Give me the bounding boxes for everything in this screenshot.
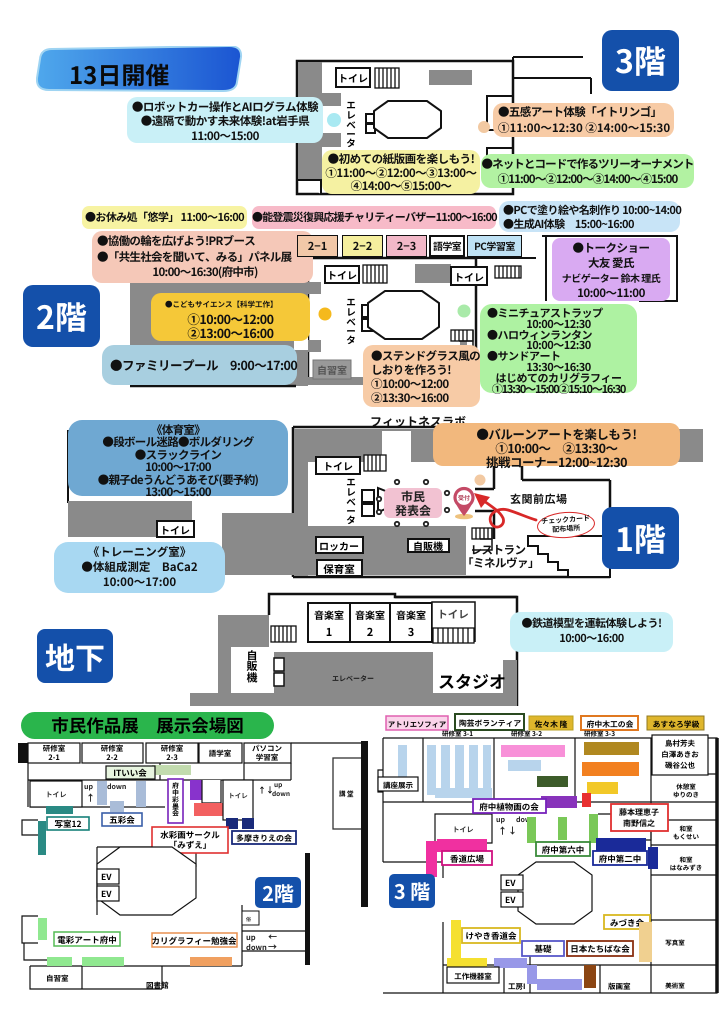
svg-text:トイレ: トイレ xyxy=(437,607,469,622)
svg-text:トイレ: トイレ xyxy=(46,790,67,800)
svg-text:down: down xyxy=(246,942,267,953)
svg-text:2-3: 2-3 xyxy=(166,752,178,763)
svg-text:香道広場: 香道広場 xyxy=(450,853,485,865)
svg-text:自習室: 自習室 xyxy=(317,362,347,377)
svg-text:トイレ: トイレ xyxy=(327,267,357,282)
svg-text:トイレ: トイレ xyxy=(454,269,484,284)
svg-text:版画室: 版画室 xyxy=(608,981,631,992)
svg-text:五彩会: 五彩会 xyxy=(109,814,135,826)
svg-text:音楽室: 音楽室 xyxy=(355,607,385,622)
svg-text:2-2: 2-2 xyxy=(106,752,118,763)
svg-text:講 堂: 講 堂 xyxy=(339,788,354,798)
svg-text:EV: EV xyxy=(505,894,516,906)
svg-text:自習室: 自習室 xyxy=(46,973,69,984)
svg-text:EV: EV xyxy=(505,877,516,889)
svg-text:ロッカー: ロッカー xyxy=(319,538,359,553)
svg-text:白澤あきお: 白澤あきお xyxy=(661,749,699,760)
svg-text:down: down xyxy=(272,788,290,798)
svg-text:自販機: 自販機 xyxy=(413,538,443,553)
svg-text:1: 1 xyxy=(326,624,333,640)
svg-text:府中彩墨会: 府中彩墨会 xyxy=(171,782,181,816)
svg-text:↓: ↓ xyxy=(508,824,517,837)
svg-text:けやき香道会: けやき香道会 xyxy=(465,930,517,942)
svg-text:磯谷公也: 磯谷公也 xyxy=(665,760,695,771)
svg-text:ITいい会: ITいい会 xyxy=(113,767,147,779)
svg-text:島村芳夫: 島村芳夫 xyxy=(665,738,695,749)
svg-text:2-1: 2-1 xyxy=(48,752,60,763)
svg-text:研修室 3-2: 研修室 3-2 xyxy=(511,728,542,738)
svg-text:トイレ: トイレ xyxy=(228,790,248,800)
svg-text:→: → xyxy=(268,940,277,953)
svg-text:語学室: 語学室 xyxy=(209,748,232,759)
svg-text:スタジオ: スタジオ xyxy=(438,668,506,693)
svg-text:あすなろ学級: あすなろ学級 xyxy=(653,719,700,730)
svg-text:南野信之: 南野信之 xyxy=(623,818,655,829)
svg-text:藤本理恵子: 藤本理恵子 xyxy=(619,807,659,818)
svg-text:トイレ: トイレ xyxy=(323,458,353,473)
svg-text:学習室: 学習室 xyxy=(256,752,279,763)
svg-text:府中第二中: 府中第二中 xyxy=(599,853,642,865)
svg-text:基礎: 基礎 xyxy=(534,943,552,955)
svg-text:2: 2 xyxy=(367,624,374,640)
svg-text:自販機: 自販機 xyxy=(244,649,260,682)
svg-text:音楽室: 音楽室 xyxy=(396,607,426,622)
svg-text:↑: ↑ xyxy=(498,824,507,837)
svg-text:↑: ↑ xyxy=(258,785,266,796)
svg-text:美術室: 美術室 xyxy=(665,980,685,990)
svg-text:↑: ↑ xyxy=(86,791,95,804)
svg-text:トイレ: トイレ xyxy=(338,70,368,85)
svg-text:研修室 3-3: 研修室 3-3 xyxy=(584,728,615,738)
svg-text:もくせい: もくせい xyxy=(673,831,700,841)
svg-text:俗: 俗 xyxy=(246,916,251,923)
svg-text:アトリエソフィア: アトリエソフィア xyxy=(388,720,446,730)
svg-text:多摩きりえの会: 多摩きりえの会 xyxy=(236,833,292,844)
svg-text:保育室: 保育室 xyxy=(323,562,355,577)
svg-text:EV: EV xyxy=(101,871,112,883)
svg-text:日本たちばな会: 日本たちばな会 xyxy=(570,943,630,955)
svg-text:受付: 受付 xyxy=(458,493,470,502)
svg-text:3: 3 xyxy=(408,624,415,640)
svg-text:府中植物画の会: 府中植物画の会 xyxy=(479,801,539,813)
svg-text:電彩アート府中: 電彩アート府中 xyxy=(57,934,117,946)
svg-text:写室12: 写室12 xyxy=(54,818,81,830)
svg-text:トイレ: トイレ xyxy=(160,522,190,537)
svg-text:音楽室: 音楽室 xyxy=(314,607,344,622)
svg-text:工作機器室: 工作機器室 xyxy=(454,971,492,982)
svg-text:カリグラフィー勉強会: カリグラフィー勉強会 xyxy=(151,935,237,947)
svg-text:EV: EV xyxy=(101,888,112,900)
svg-text:down: down xyxy=(107,782,126,792)
svg-text:エレベータ: エレベータ xyxy=(344,297,358,345)
svg-text:写真室: 写真室 xyxy=(665,937,685,947)
svg-text:研修室 3-1: 研修室 3-1 xyxy=(442,728,473,738)
svg-text:ゆりのき: ゆりのき xyxy=(673,789,699,799)
svg-text:府中第六中: 府中第六中 xyxy=(542,844,585,856)
svg-text:エレベーター: エレベーター xyxy=(332,674,374,684)
svg-text:トイレ: トイレ xyxy=(453,825,474,835)
svg-text:エレベータ: エレベータ xyxy=(344,100,358,148)
svg-text:はなみずき: はなみずき xyxy=(670,862,703,872)
svg-text:エレベータ: エレベータ xyxy=(344,477,358,525)
svg-text:講座展示: 講座展示 xyxy=(383,780,413,791)
svg-text:図書館: 図書館 xyxy=(146,980,169,991)
svg-text:工房I: 工房I xyxy=(508,981,525,992)
